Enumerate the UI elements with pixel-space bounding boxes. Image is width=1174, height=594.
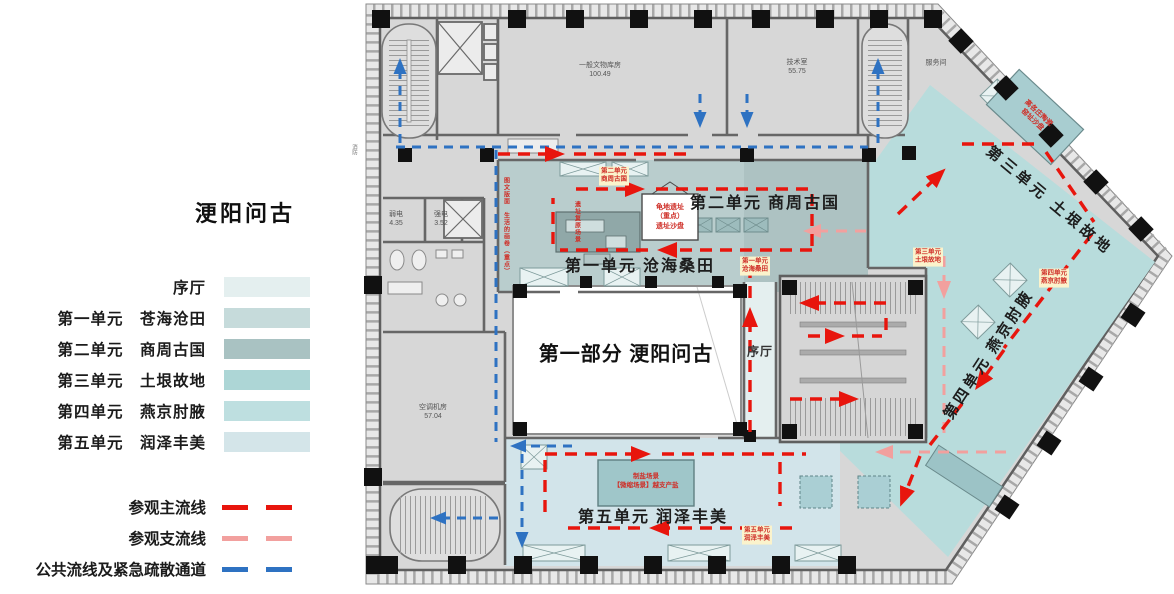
legend-zone-label: 第三单元 土垠故地 (0, 369, 206, 391)
room-artifact-storage: 一般文物库房 100.49 (579, 61, 621, 79)
legend-zone-label: 序厅 (0, 276, 206, 298)
legend-zone-row: 第一单元 苍海沧田 (0, 308, 312, 328)
legend-zone-label: 第四单元 燕京肘腋 (0, 400, 206, 422)
room-name: 一般文物库房 (579, 62, 621, 69)
legend-zone-row: 第二单元 商周古国 (0, 339, 312, 359)
room-strong-power: 强电 3.52 (434, 210, 448, 228)
room-area: 100.49 (579, 70, 621, 79)
tag-unit1: 第一单元 沧海桑田 (740, 257, 770, 276)
room-hvac: 空调机房 57.04 (419, 403, 447, 421)
tag-line: 燕京肘腋 (1041, 278, 1067, 286)
legend-zone-row: 序厅 (0, 277, 312, 297)
room-area: 3.52 (434, 219, 448, 228)
room-area: 4.35 (389, 219, 403, 228)
callout-graphic-panel: 图文版面 生活的画卷（重点） (502, 177, 511, 275)
route-dash-sample (222, 567, 248, 572)
legend-route-branch: 参观支流线 (0, 530, 312, 546)
room-weak-power: 弱电 4.35 (389, 210, 403, 228)
legend-zone-swatch (224, 401, 310, 421)
tag-unit2: 第二单元 商周古国 (599, 167, 629, 186)
tag-unit3: 第三单元 土垠故地 (913, 248, 943, 267)
legend-zone-swatch (224, 432, 310, 452)
tag-line: 商周古国 (601, 176, 627, 184)
room-tech: 技术室 55.75 (787, 58, 808, 76)
legend-zone-label: 第一单元 苍海沧田 (0, 307, 206, 329)
legend-title: 浭阳问古 (178, 196, 312, 228)
circulation-plan-page: 第一部分 浭阳问古 序厅 第一单元 沧海桑田 第二单元 商周古国 第三单元 土垠… (0, 0, 1174, 594)
route-dash-sample (266, 536, 292, 541)
callout-site-restore: 遗址复原场景 (573, 201, 582, 243)
room-name: 弱电 (389, 211, 403, 218)
stair-top-right (862, 24, 908, 138)
legend-zone-swatch (224, 277, 310, 297)
tag-unit4: 第四单元 燕京肘腋 (1039, 269, 1069, 288)
legend-route-label: 参观支流线 (0, 527, 206, 549)
route-dash-sample (222, 505, 248, 510)
legend-zone-label: 第五单元 润泽丰美 (0, 431, 206, 453)
tag-line: 土垠故地 (915, 257, 941, 265)
room-service: 服务间 (926, 58, 947, 67)
callout-line: 制盐场景 (614, 473, 679, 482)
plan-part-title: 第一部分 浭阳问古 (539, 338, 714, 367)
callout-line: 遗址沙盘 (656, 222, 684, 231)
legend-zone-swatch (224, 370, 310, 390)
legend-route-label: 参观主流线 (0, 496, 206, 518)
legend-zone-label: 第二单元 商周古国 (0, 338, 206, 360)
callout-line: （重点） (656, 212, 684, 221)
room-name: 技术室 (787, 59, 808, 66)
room-area: 57.04 (419, 412, 447, 421)
hall-label: 序厅 (747, 343, 773, 360)
stair-top-left (382, 24, 436, 138)
unit2-zone-label: 第二单元 商周古国 (690, 189, 840, 213)
legend-zone-swatch (224, 308, 310, 328)
room-fire-label: 消防 (350, 144, 358, 155)
legend-route-main: 参观主流线 (0, 499, 312, 515)
route-dash-sample (266, 567, 292, 572)
callout-salt-scene: 制盐场景 【微缩场景】越支产盐 (614, 473, 679, 491)
room-area: 55.75 (787, 67, 808, 76)
legend-zone-row: 第四单元 燕京肘腋 (0, 401, 312, 421)
stair-bottom-left (390, 489, 500, 561)
tag-line: 润泽丰美 (744, 535, 770, 543)
unit1-zone-label: 第一单元 沧海桑田 (565, 252, 715, 276)
route-dash-sample (266, 505, 292, 510)
callout-guidi-site: 龟地遗址 （重点） 遗址沙盘 (656, 203, 684, 231)
legend-route-label: 公共流线及紧急疏散通道 (0, 558, 206, 580)
legend-zone-swatch (224, 339, 310, 359)
room-name: 空调机房 (419, 404, 447, 411)
room-name: 服务间 (926, 59, 947, 66)
stair-central-hall (780, 276, 926, 442)
tag-unit5: 第五单元 润泽丰美 (742, 526, 772, 545)
legend-zone-row: 第五单元 润泽丰美 (0, 432, 312, 452)
legend-zone-row: 第三单元 土垠故地 (0, 370, 312, 390)
unit5-zone-label: 第五单元 润泽丰美 (578, 503, 728, 527)
tag-line: 沧海桑田 (742, 266, 768, 274)
legend-route-public: 公共流线及紧急疏散通道 (0, 561, 312, 577)
route-dash-sample (222, 536, 248, 541)
room-name: 强电 (434, 211, 448, 218)
callout-line: 【微缩场景】越支产盐 (614, 482, 679, 491)
